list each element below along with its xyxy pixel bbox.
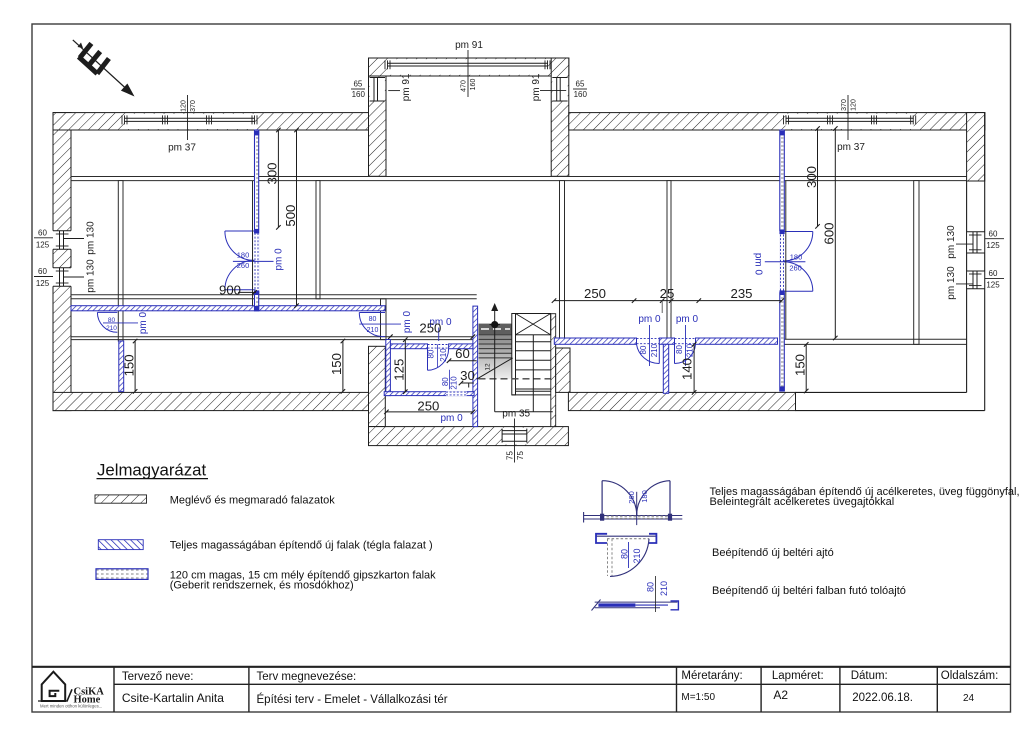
svg-text:12: 12 xyxy=(485,363,492,371)
svg-text:60: 60 xyxy=(455,346,470,361)
svg-text:65: 65 xyxy=(353,80,362,89)
svg-text:180: 180 xyxy=(640,490,649,503)
svg-text:160: 160 xyxy=(352,90,366,99)
svg-text:600: 600 xyxy=(822,222,837,244)
svg-text:pm 130: pm 130 xyxy=(946,266,957,300)
svg-text:150: 150 xyxy=(329,353,344,375)
svg-text:Mert minden otthon különleges.: Mert minden otthon különleges... xyxy=(40,703,102,708)
svg-text:pm 91: pm 91 xyxy=(401,73,412,101)
svg-text:260: 260 xyxy=(789,264,802,273)
svg-text:160: 160 xyxy=(574,90,588,99)
svg-text:Beleintegrált acélkeretes üveg: Beleintegrált acélkeretes üvegajtókkal xyxy=(710,496,895,508)
svg-text:pm 0: pm 0 xyxy=(274,248,285,271)
svg-text:210: 210 xyxy=(106,325,117,332)
svg-text:Lapméret:: Lapméret: xyxy=(772,670,824,682)
svg-text:75: 75 xyxy=(516,451,525,460)
svg-text:60: 60 xyxy=(989,230,998,239)
svg-text:210: 210 xyxy=(367,327,379,334)
svg-text:210: 210 xyxy=(439,348,448,362)
svg-text:pm 91: pm 91 xyxy=(455,40,483,51)
svg-text:Beépítendő új beltéri ajtó: Beépítendő új beltéri ajtó xyxy=(712,547,834,559)
svg-text:260: 260 xyxy=(237,261,250,270)
svg-text:300: 300 xyxy=(265,162,280,184)
svg-text:150: 150 xyxy=(121,354,136,376)
svg-text:470: 470 xyxy=(461,80,468,92)
svg-text:180: 180 xyxy=(790,252,803,261)
svg-text:370: 370 xyxy=(841,99,848,111)
svg-text:pm 37: pm 37 xyxy=(168,143,196,154)
svg-text:210: 210 xyxy=(650,343,659,357)
svg-text:80: 80 xyxy=(646,582,656,592)
svg-text:Jelmagyarázat: Jelmagyarázat xyxy=(97,461,206,480)
svg-text:500: 500 xyxy=(283,205,298,227)
svg-text:235: 235 xyxy=(730,286,752,301)
svg-text:120: 120 xyxy=(181,100,188,112)
svg-text:Tervező neve:: Tervező neve: xyxy=(122,671,194,683)
svg-text:pm 0: pm 0 xyxy=(440,413,463,424)
svg-text:250: 250 xyxy=(417,398,439,413)
svg-text:25: 25 xyxy=(660,286,675,301)
svg-text:pm 130: pm 130 xyxy=(86,221,97,255)
svg-text:60: 60 xyxy=(38,267,47,276)
svg-text:Teljes magasságában építendő ú: Teljes magasságában építendő új falak (t… xyxy=(170,540,433,552)
svg-text:150: 150 xyxy=(792,354,807,376)
svg-text:260: 260 xyxy=(627,491,636,504)
svg-text:A2: A2 xyxy=(773,688,788,702)
svg-text:80: 80 xyxy=(639,345,648,354)
svg-text:pm 0: pm 0 xyxy=(638,314,661,325)
svg-text:pm 0: pm 0 xyxy=(753,253,764,276)
svg-text:Meglévő és megmaradó falazatok: Meglévő és megmaradó falazatok xyxy=(170,494,336,506)
svg-text:160: 160 xyxy=(470,79,477,91)
svg-text:60: 60 xyxy=(989,269,998,278)
svg-text:pm 0: pm 0 xyxy=(676,314,699,325)
svg-text:pm 0: pm 0 xyxy=(402,310,413,333)
svg-text:80: 80 xyxy=(369,316,377,323)
svg-text:pm 37: pm 37 xyxy=(837,142,865,153)
svg-text:Dátum:: Dátum: xyxy=(851,670,888,682)
svg-text:pm 130: pm 130 xyxy=(86,259,97,293)
svg-text:M=1:50: M=1:50 xyxy=(681,692,715,703)
svg-text:900: 900 xyxy=(219,282,241,297)
svg-text:80: 80 xyxy=(620,549,630,559)
svg-text:300: 300 xyxy=(804,166,819,188)
svg-text:210: 210 xyxy=(659,581,669,596)
svg-text:125: 125 xyxy=(986,241,1000,250)
svg-text:210: 210 xyxy=(449,376,458,390)
svg-text:140: 140 xyxy=(680,358,695,380)
svg-text:250: 250 xyxy=(419,321,441,336)
svg-text:pm 0: pm 0 xyxy=(138,311,149,334)
svg-text:30: 30 xyxy=(460,368,475,383)
svg-text:120: 120 xyxy=(851,99,858,111)
svg-text:60: 60 xyxy=(38,228,47,237)
svg-text:pm 130: pm 130 xyxy=(946,225,957,259)
svg-text:250: 250 xyxy=(584,286,606,301)
svg-text:125: 125 xyxy=(36,240,50,249)
svg-text:125: 125 xyxy=(36,279,50,288)
svg-text:pm 35: pm 35 xyxy=(502,409,530,420)
svg-text:Beépítendő új beltéri falban f: Beépítendő új beltéri falban futó tolóaj… xyxy=(712,585,906,597)
svg-text:Csite-Kartalin Anita: Csite-Kartalin Anita xyxy=(122,691,224,705)
svg-text:125: 125 xyxy=(391,359,406,381)
svg-text:65: 65 xyxy=(576,80,585,89)
svg-text:2022.06.18.: 2022.06.18. xyxy=(852,692,913,704)
svg-text:Építési terv - Emelet - Vállal: Építési terv - Emelet - Vállalkozási tér xyxy=(257,693,448,706)
svg-text:80: 80 xyxy=(675,345,684,354)
svg-text:24: 24 xyxy=(963,693,975,704)
svg-text:pm 91: pm 91 xyxy=(531,73,542,101)
svg-text:Terv megnevezése:: Terv megnevezése: xyxy=(257,671,357,683)
svg-text:Oldalszám:: Oldalszám: xyxy=(941,670,999,682)
svg-text:210: 210 xyxy=(632,548,642,563)
svg-text:370: 370 xyxy=(190,100,197,112)
svg-text:Méretarány:: Méretarány: xyxy=(681,670,742,682)
svg-text:80: 80 xyxy=(427,349,436,358)
svg-text:75: 75 xyxy=(506,451,515,460)
svg-text:(Geberit rendszernek, és mosdó: (Geberit rendszernek, és mosdókhoz) xyxy=(170,579,354,591)
svg-text:180: 180 xyxy=(237,251,250,260)
svg-text:125: 125 xyxy=(986,281,1000,290)
